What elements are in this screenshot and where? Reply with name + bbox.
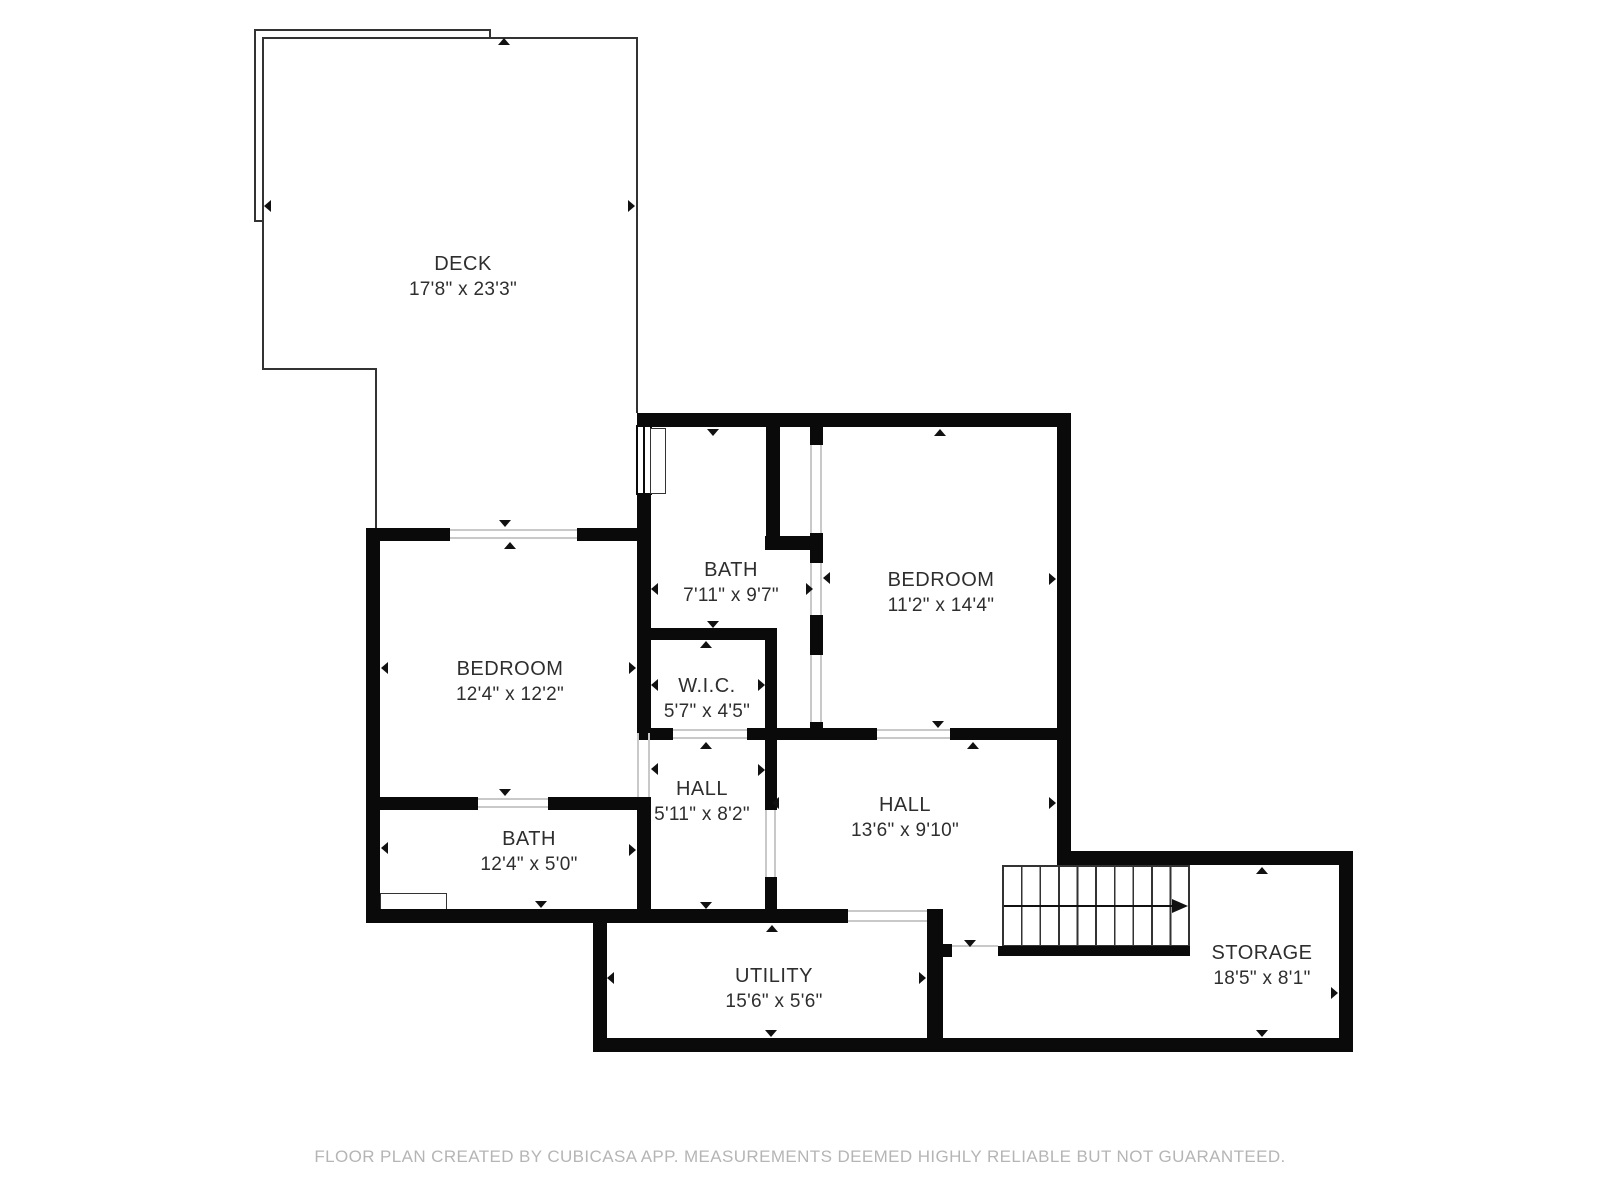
deck-outline-line (636, 37, 638, 413)
wall (637, 628, 777, 640)
room-dimensions: 12'4" x 12'2" (456, 683, 564, 707)
wall (1339, 851, 1353, 1052)
room-dimensions: 17'8" x 23'3" (409, 278, 517, 302)
measurement-arrow-icon (264, 200, 271, 212)
wall (765, 877, 777, 923)
room-label-bath-lower: BATH 12'4" x 5'0" (480, 827, 577, 877)
door-threshold-line (820, 563, 822, 615)
measurement-arrow-icon (806, 583, 813, 595)
measurement-arrow-icon (498, 38, 510, 45)
measurement-arrow-icon (1049, 797, 1056, 809)
measurement-arrow-icon (1331, 987, 1338, 999)
wall (941, 944, 952, 957)
room-label-deck: DECK 17'8" x 23'3" (409, 252, 517, 302)
room-dimensions: 12'4" x 5'0" (480, 853, 577, 877)
door-threshold-line (877, 729, 950, 731)
room-dimensions: 5'7" x 4'5" (664, 700, 750, 724)
door-threshold-line (877, 737, 950, 739)
measurement-arrow-icon (964, 940, 976, 947)
door-threshold-line (648, 733, 650, 797)
room-dimensions: 5'11" x 8'2" (654, 803, 750, 827)
measurement-arrow-icon (700, 742, 712, 749)
room-name: W.I.C. (664, 674, 750, 698)
room-label-bedroom-right: BEDROOM 11'2" x 14'4" (888, 568, 995, 618)
door-threshold-line (478, 798, 548, 800)
measurement-arrow-icon (707, 429, 719, 436)
wall (593, 1038, 1353, 1052)
measurement-arrow-icon (919, 972, 926, 984)
room-name: BEDROOM (456, 657, 564, 681)
room-name: BEDROOM (888, 568, 995, 592)
measurement-arrow-icon (629, 662, 636, 674)
deck-railing-line (254, 29, 256, 222)
measurement-arrow-icon (628, 200, 635, 212)
measurement-arrow-icon (381, 842, 388, 854)
room-label-bedroom-left: BEDROOM 12'4" x 12'2" (456, 657, 564, 707)
measurement-arrow-icon (499, 789, 511, 796)
wall (637, 495, 651, 733)
door-threshold-line (637, 733, 639, 797)
deck-outline-line (262, 37, 636, 39)
door-threshold-line (673, 737, 747, 739)
measurement-arrow-icon (381, 662, 388, 674)
measurement-arrow-icon (707, 621, 719, 628)
wall (998, 946, 1190, 956)
room-name: DECK (409, 252, 517, 276)
room-label-hall-right: HALL 13'6" x 9'10" (851, 793, 959, 843)
door-threshold-line (820, 655, 822, 722)
wall (637, 728, 673, 740)
wall (810, 533, 823, 563)
wall (366, 528, 450, 541)
room-label-utility: UTILITY 15'6" x 5'6" (725, 964, 822, 1014)
room-label-bath-upper: BATH 7'11" x 9'7" (683, 558, 779, 608)
room-label-wic: W.I.C. 5'7" x 4'5" (664, 674, 750, 724)
deck-railing-line (254, 220, 264, 222)
deck-outline-line (262, 368, 375, 370)
room-label-hall-left: HALL 5'11" x 8'2" (654, 777, 750, 827)
measurement-arrow-icon (772, 797, 779, 809)
wall (593, 909, 607, 1052)
wall (1057, 851, 1353, 865)
measurement-arrow-icon (934, 429, 946, 436)
deck-railing-line (489, 29, 491, 39)
room-name: BATH (683, 558, 779, 582)
wall (1057, 413, 1071, 865)
measurement-arrow-icon (700, 902, 712, 909)
wall (548, 797, 651, 810)
measurement-arrow-icon (823, 572, 830, 584)
room-label-storage: STORAGE 18'5" x 8'1" (1212, 941, 1313, 991)
room-name: BATH (480, 827, 577, 851)
wall (366, 797, 478, 810)
measurement-arrow-icon (651, 583, 658, 595)
room-dimensions: 13'6" x 9'10" (851, 819, 959, 843)
measurement-arrow-icon (758, 679, 765, 691)
deck-outline-line (375, 368, 377, 528)
room-name: HALL (851, 793, 959, 817)
measurement-arrow-icon (765, 1030, 777, 1037)
door-threshold-line (820, 445, 822, 533)
wall (766, 427, 780, 537)
door-threshold-line (450, 537, 577, 539)
measurement-arrow-icon (651, 763, 658, 775)
measurement-arrow-icon (932, 721, 944, 728)
wall (765, 628, 777, 810)
measurement-arrow-icon (651, 679, 658, 691)
measurement-arrow-icon (607, 972, 614, 984)
door-threshold-line (810, 655, 812, 722)
window-sill-line (643, 427, 645, 493)
measurement-arrow-icon (700, 641, 712, 648)
room-name: UTILITY (725, 964, 822, 988)
room-dimensions: 7'11" x 9'7" (683, 584, 779, 608)
wall (637, 413, 651, 425)
wall (927, 909, 943, 1039)
door-threshold-line (673, 729, 747, 731)
door-threshold-line (848, 910, 927, 912)
wall (747, 728, 877, 740)
wall (810, 413, 823, 445)
door-threshold-line (478, 806, 548, 808)
measurement-arrow-icon (766, 925, 778, 932)
measurement-arrow-icon (629, 844, 636, 856)
measurement-arrow-icon (499, 520, 511, 527)
wall (637, 797, 651, 923)
wall (637, 413, 1071, 427)
deck-railing-line (254, 29, 489, 31)
measurement-arrow-icon (1256, 867, 1268, 874)
measurement-arrow-icon (1256, 1030, 1268, 1037)
room-dimensions: 11'2" x 14'4" (888, 594, 995, 618)
room-name: STORAGE (1212, 941, 1313, 965)
door-threshold-line (450, 529, 577, 531)
wall (366, 528, 380, 923)
footer-disclaimer: FLOOR PLAN CREATED BY CUBICASA APP. MEAS… (0, 1147, 1600, 1167)
floor-plan-canvas: DECK 17'8" x 23'3" BATH 7'11" x 9'7" BED… (0, 0, 1600, 1200)
wall (810, 615, 823, 655)
measurement-arrow-icon (1049, 573, 1056, 585)
measurement-arrow-icon (758, 764, 765, 776)
room-dimensions: 18'5" x 8'1" (1212, 967, 1313, 991)
stairs-direction-arrow-icon (1004, 905, 1172, 907)
stairs-direction-arrowhead-icon (1172, 899, 1188, 913)
measurement-arrow-icon (535, 901, 547, 908)
measurement-arrow-icon (504, 542, 516, 549)
window-casing (650, 428, 666, 494)
door-threshold-line (848, 920, 927, 922)
room-name: HALL (654, 777, 750, 801)
door-threshold-line (765, 810, 767, 877)
measurement-arrow-icon (967, 742, 979, 749)
door-threshold-line (810, 445, 812, 533)
wall (950, 728, 1057, 740)
door-threshold-line (774, 810, 776, 877)
room-dimensions: 15'6" x 5'6" (725, 990, 822, 1014)
